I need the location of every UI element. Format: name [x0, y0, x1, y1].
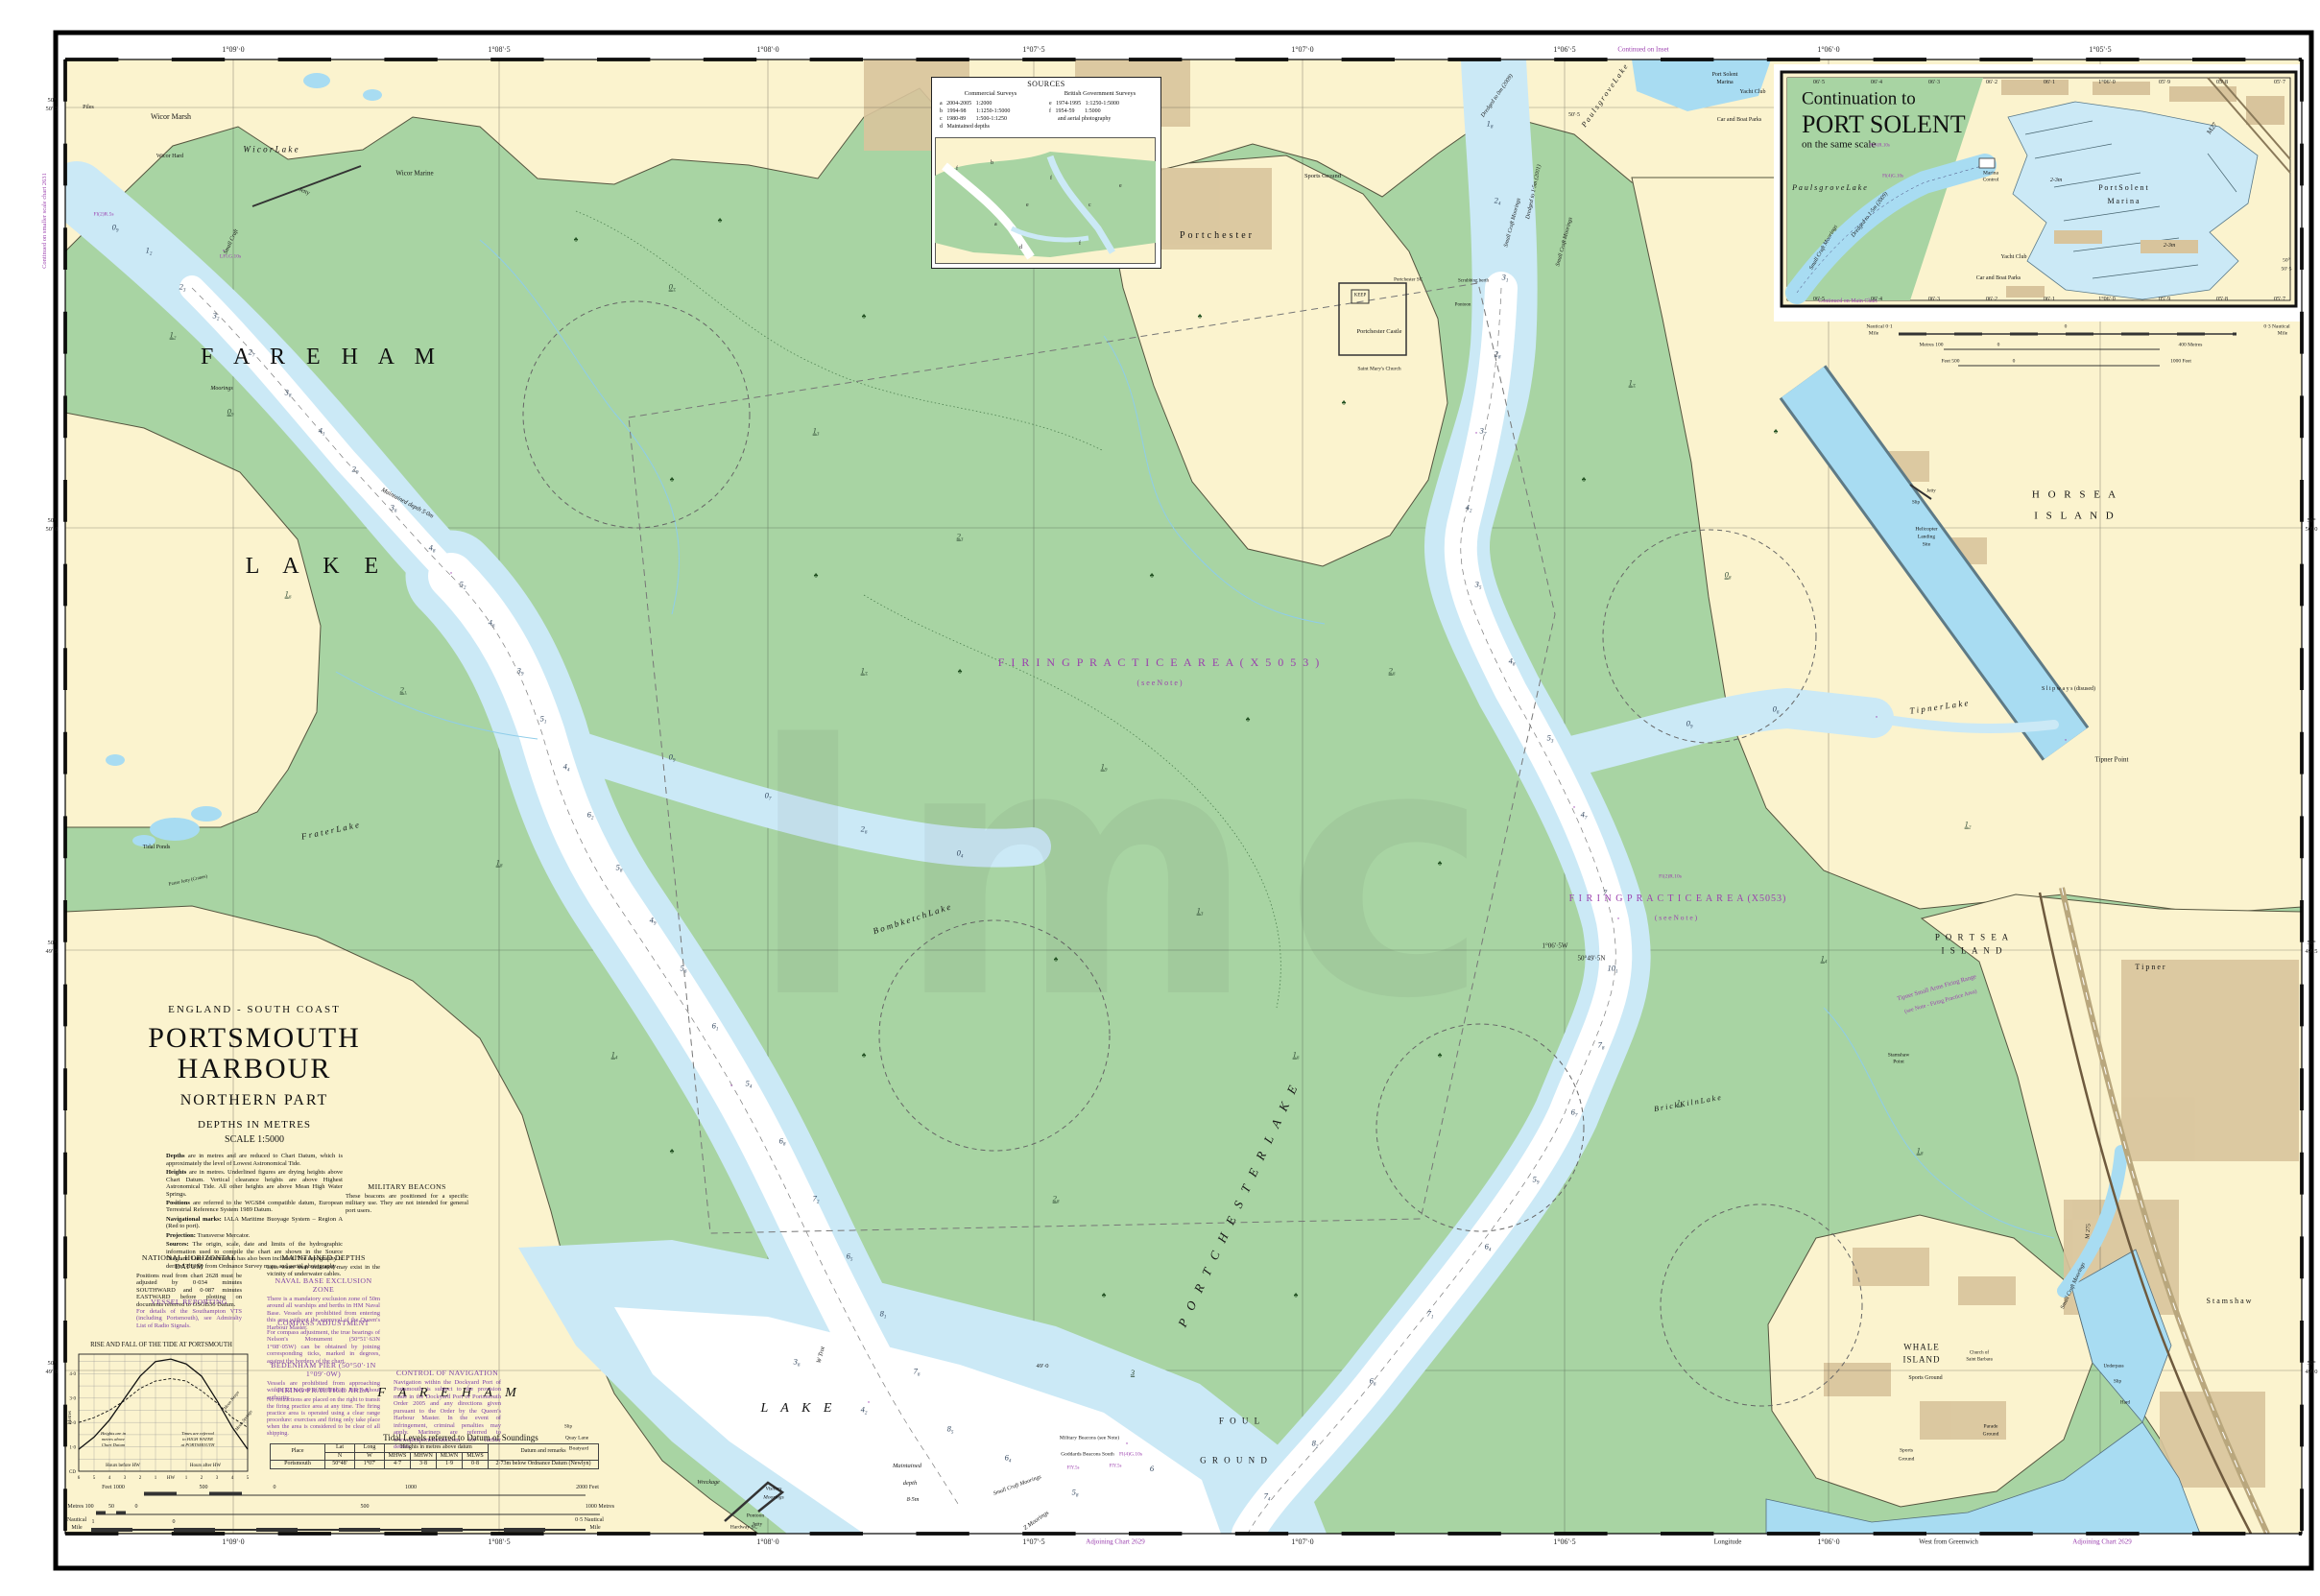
svg-text:at PORTSMOUTH: at PORTSMOUTH [181, 1442, 216, 1447]
svg-text:to HIGH WATER: to HIGH WATER [182, 1437, 213, 1441]
nautical-chart-page: lmc 1°09'·01°08'·51°08'·01°07'·51°07'·01… [0, 0, 2320, 1596]
svg-text:f: f [1079, 240, 1081, 247]
watermark: lmc [749, 672, 1519, 1074]
tide-graph: RISE AND FALL OF THE TIDE AT PORTSMOUTH … [63, 1342, 259, 1497]
qr-code [144, 1551, 161, 1568]
svg-text:f: f [1050, 175, 1052, 181]
tidal-levels-table: Place Lat Long Heights in metres above d… [270, 1443, 599, 1469]
svg-text:f: f [956, 165, 958, 172]
svg-text:4·0: 4·0 [69, 1372, 76, 1377]
table-row: Portsmouth 50°48' 1°07' 4·7 3·8 1·9 0·8 … [271, 1461, 599, 1469]
svg-text:4: 4 [108, 1476, 111, 1481]
svg-text:5: 5 [247, 1476, 250, 1481]
svg-text:3·0: 3·0 [69, 1397, 76, 1402]
svg-text:6: 6 [78, 1476, 81, 1481]
sources-commercial-title: Commercial Surveys [938, 90, 1043, 97]
note-maintained-depths: MAINTAINED DEPTHSLess water than indicat… [267, 1253, 380, 1278]
note-military-beacons: MILITARY BEACONSThese beacons are positi… [346, 1182, 468, 1214]
svg-text:3: 3 [216, 1476, 219, 1481]
svg-text:Times are referred: Times are referred [181, 1431, 214, 1436]
svg-text:3: 3 [124, 1476, 127, 1481]
svg-text:e: e [1026, 202, 1029, 208]
scale-note: SCALE 1:5000 [128, 1134, 381, 1145]
svg-text:1: 1 [185, 1476, 188, 1481]
chart-notes: Depths are in metres and are reduced to … [166, 1153, 343, 1270]
chart-region: ENGLAND - SOUTH COAST [128, 1004, 381, 1015]
depths-note: DEPTHS IN METRES [128, 1119, 381, 1131]
svg-text:c: c [1088, 202, 1091, 208]
svg-text:metres above: metres above [102, 1437, 125, 1441]
svg-text:b: b [991, 160, 993, 166]
port-solent-inset [1774, 64, 2304, 322]
svg-text:Chart Datum: Chart Datum [102, 1442, 126, 1447]
svg-text:1: 1 [155, 1476, 157, 1481]
svg-text:e: e [1119, 183, 1122, 189]
source-diagram: fbfeacdef [935, 137, 1156, 264]
note-firing-practice-area: FIRING PRACTICE AREANo restrictions are … [267, 1386, 380, 1438]
svg-text:Metres: Metres [68, 1411, 73, 1424]
sources-commercial-list: a 2004-2005 1:2000b 1994-98 1:1250-1:500… [940, 100, 1047, 131]
tidal-table-caption: Tidal Levels referred to Datum of Soundi… [317, 1433, 605, 1442]
title-block: ENGLAND - SOUTH COAST PORTSMOUTHHARBOUR … [128, 1004, 381, 1272]
svg-text:a: a [994, 222, 997, 227]
svg-text:2: 2 [201, 1476, 203, 1481]
svg-text:4: 4 [231, 1476, 234, 1481]
svg-text:2: 2 [139, 1476, 142, 1481]
chart-title: PORTSMOUTHHARBOUR [128, 1023, 381, 1084]
note-compass-adjustment: COMPASS ADJUSTMENTFor compass adjustment… [267, 1319, 380, 1365]
sources-government-title: British Government Surveys [1047, 90, 1153, 97]
svg-text:Hours after HW: Hours after HW [190, 1464, 221, 1468]
sources-title: SOURCES [932, 80, 1160, 88]
sources-panel: SOURCES Commercial Surveys British Gover… [931, 77, 1161, 269]
svg-text:1·0: 1·0 [69, 1445, 76, 1450]
svg-text:5: 5 [93, 1476, 96, 1481]
tide-graph-plot: 654321HW123451·02·03·04·0CDMetresHours b… [63, 1350, 259, 1494]
svg-text:d: d [1019, 245, 1022, 250]
note-vessel-reporting: VESSEL REPORTINGFor details of the South… [136, 1298, 242, 1329]
svg-text:CD: CD [69, 1470, 76, 1475]
svg-text:Heights are in: Heights are in [100, 1431, 127, 1436]
svg-text:Mean Neaps: Mean Neaps [222, 1390, 240, 1411]
chart-subtitle: NORTHERN PART [128, 1092, 381, 1109]
tide-graph-title: RISE AND FALL OF THE TIDE AT PORTSMOUTH [63, 1342, 259, 1348]
sources-government-list: e 1974-1995 1:1250-1:5000f 1954-59 1:500… [1049, 100, 1157, 123]
svg-text:Hours before HW: Hours before HW [106, 1464, 140, 1468]
svg-text:HW: HW [167, 1476, 176, 1481]
